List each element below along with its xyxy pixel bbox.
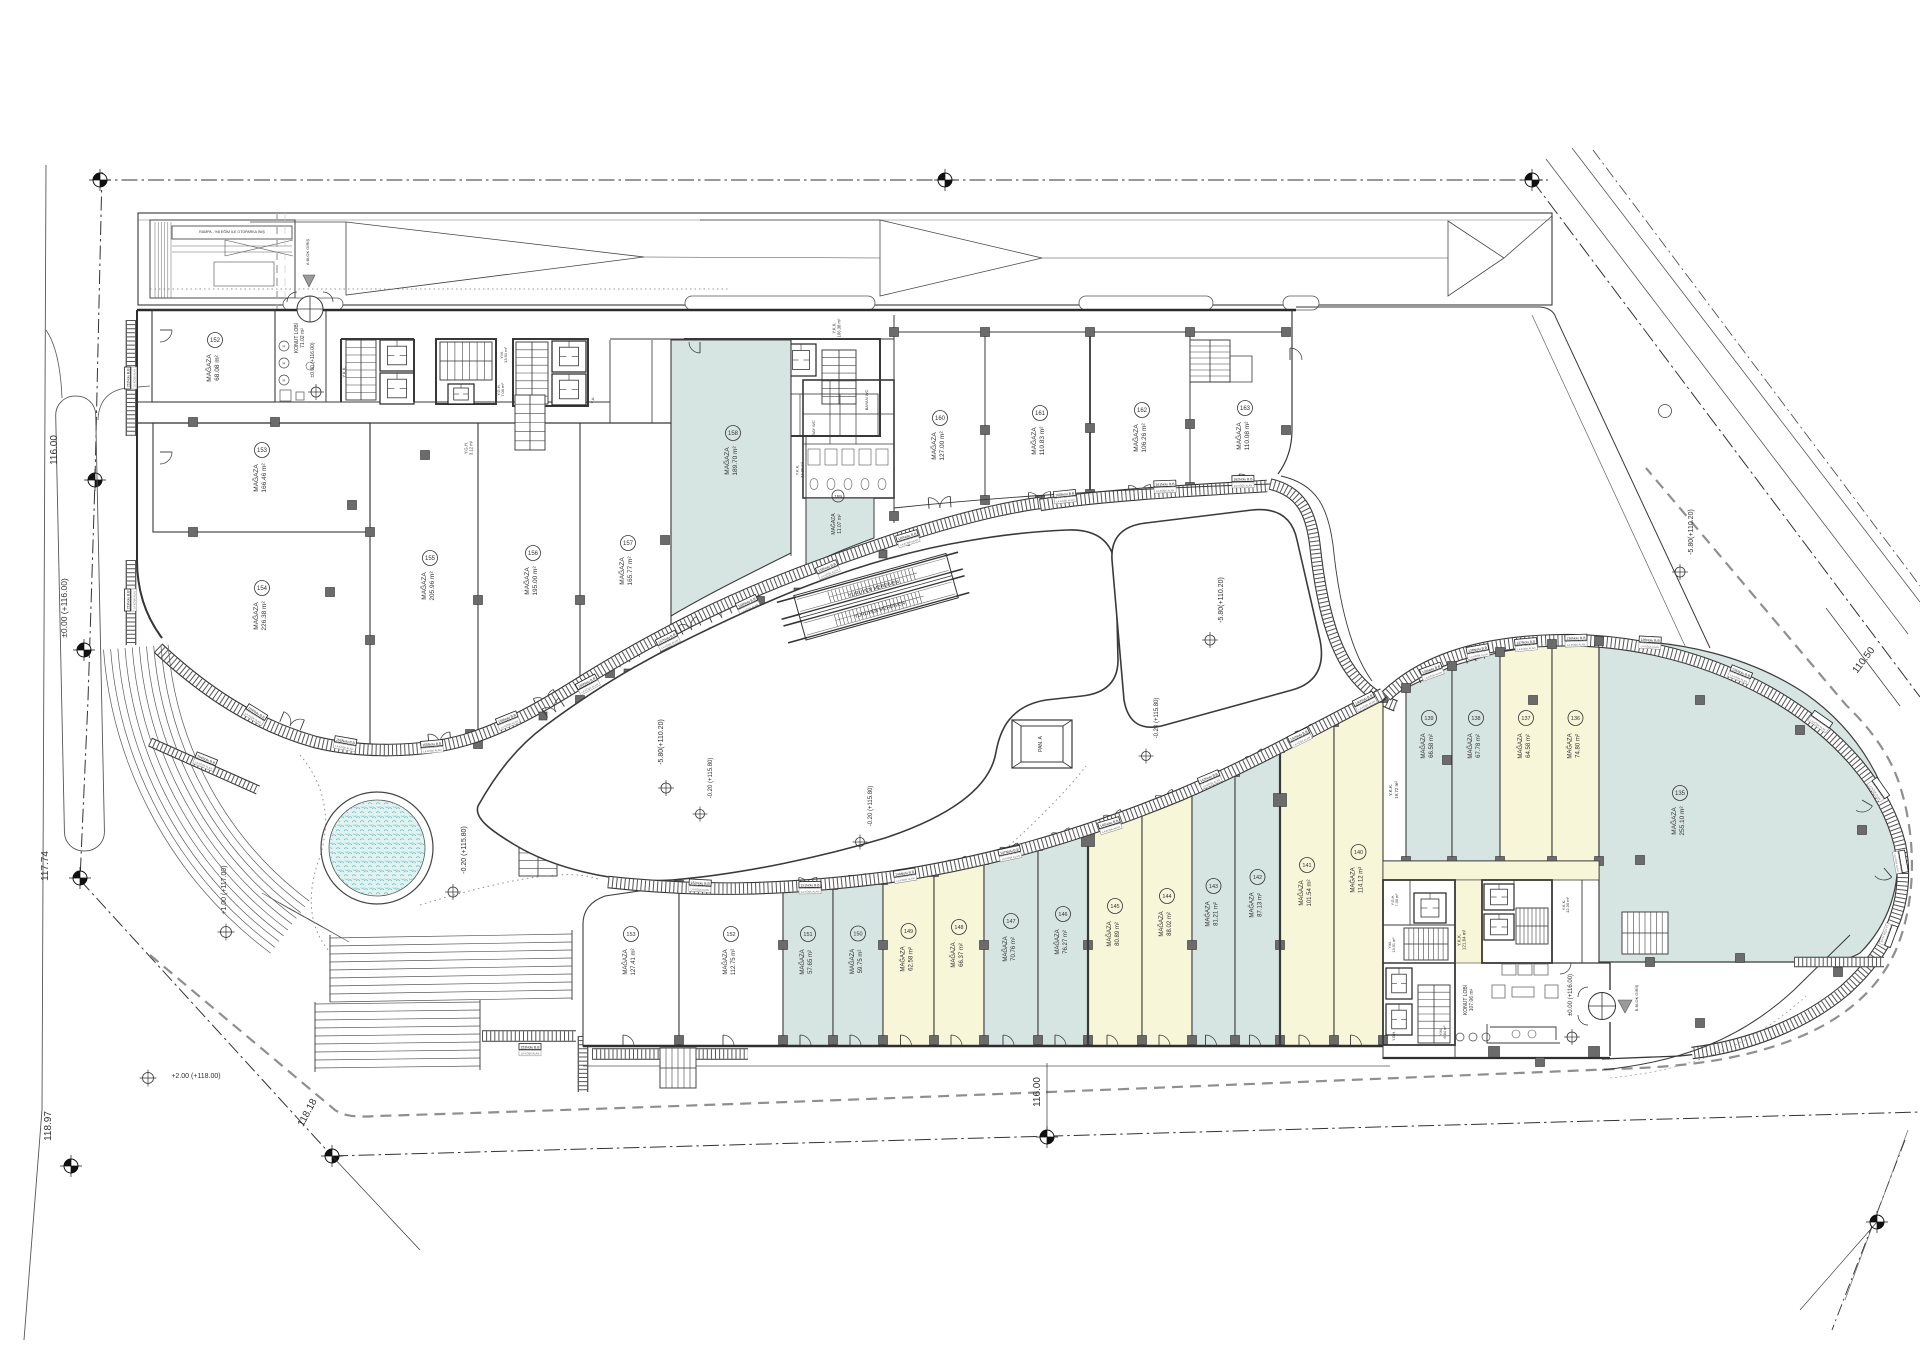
svg-text:140: 140 bbox=[1354, 850, 1363, 856]
svg-text:144: 144 bbox=[1162, 894, 1171, 900]
svg-text:MAĞAZA205.96 m²: MAĞAZA205.96 m² bbox=[419, 571, 436, 601]
svg-text:LA KÖŞK ALAN: LA KÖŞK ALAN bbox=[1567, 642, 1586, 647]
svg-text:LA KÖŞK ALAN: LA KÖŞK ALAN bbox=[521, 1052, 539, 1056]
svg-text:139: 139 bbox=[1424, 716, 1433, 722]
svg-text:PAN. A: PAN. A bbox=[1038, 735, 1044, 751]
svg-text:147: 147 bbox=[1006, 919, 1015, 925]
svg-text:161Nolu B.B: 161Nolu B.B bbox=[1155, 482, 1175, 487]
svg-text:MAĞAZA110.08 m²: MAĞAZA110.08 m² bbox=[1234, 421, 1251, 451]
svg-text:163: 163 bbox=[1240, 406, 1251, 412]
svg-text:153: 153 bbox=[626, 932, 635, 938]
svg-text:148: 148 bbox=[954, 925, 963, 931]
svg-text:±0.00 (+116.00): ±0.00 (+116.00) bbox=[310, 342, 316, 377]
svg-text:155: 155 bbox=[425, 556, 436, 562]
svg-text:A BLOK GİRİŞ: A BLOK GİRİŞ bbox=[305, 239, 310, 266]
svg-text:143: 143 bbox=[1209, 884, 1218, 890]
svg-text:162Nolu B.B: 162Nolu B.B bbox=[1233, 477, 1253, 481]
svg-text:-0.20 (+115.80): -0.20 (+115.80) bbox=[708, 758, 714, 799]
svg-text:-5.80(+110.20): -5.80(+110.20) bbox=[1688, 509, 1695, 555]
svg-text:153Nolu B.B: 153Nolu B.B bbox=[520, 1045, 540, 1049]
svg-text:135: 135 bbox=[1675, 791, 1686, 797]
svg-text:153: 153 bbox=[257, 448, 268, 454]
svg-text:MAĞAZA68.08 m²: MAĞAZA68.08 m² bbox=[204, 354, 221, 382]
svg-text:LA KÖŞK ALAN: LA KÖŞK ALAN bbox=[801, 889, 820, 893]
svg-text:138: 138 bbox=[1471, 716, 1480, 722]
svg-text:118.97: 118.97 bbox=[43, 1111, 54, 1141]
svg-text:LA KÖŞK ALAN: LA KÖŞK ALAN bbox=[1156, 488, 1175, 493]
svg-text:H: H bbox=[283, 344, 286, 349]
svg-text:LA KÖŞK ALAN: LA KÖŞK ALAN bbox=[133, 591, 137, 609]
svg-text:136Nolu B.B: 136Nolu B.B bbox=[1566, 636, 1586, 641]
svg-text:161: 161 bbox=[1035, 411, 1046, 417]
svg-text:141: 141 bbox=[1302, 863, 1311, 869]
svg-text:159: 159 bbox=[834, 494, 842, 499]
svg-text:-5.80(+110.20): -5.80(+110.20) bbox=[658, 719, 665, 765]
svg-text:151Nolu B.B: 151Nolu B.B bbox=[800, 883, 820, 887]
svg-text:162: 162 bbox=[1137, 408, 1148, 414]
svg-text:MAĞAZA226.38 m²: MAĞAZA226.38 m² bbox=[251, 601, 268, 631]
svg-text:H: H bbox=[283, 361, 286, 366]
svg-text:Y.G.H.3.12 m²: Y.G.H.3.12 m² bbox=[464, 440, 474, 455]
svg-text:116.00: 116.00 bbox=[49, 435, 60, 465]
svg-text:153Nolu B.B: 153Nolu B.B bbox=[126, 590, 130, 610]
svg-text:B BLOK GİRİŞ: B BLOK GİRİŞ bbox=[1634, 984, 1639, 1011]
svg-text:LA KÖŞK ALAN: LA KÖŞK ALAN bbox=[133, 369, 137, 387]
svg-text:-0.20 (+115.80): -0.20 (+115.80) bbox=[868, 786, 874, 827]
svg-text:MAĞAZA127.00 m²: MAĞAZA127.00 m² bbox=[929, 431, 946, 461]
svg-text:MAĞAZA110.83 m²: MAĞAZA110.83 m² bbox=[1029, 426, 1046, 456]
svg-text:MAĞAZA189.70 m²: MAĞAZA189.70 m² bbox=[722, 446, 739, 476]
svg-text:142: 142 bbox=[1253, 875, 1262, 881]
svg-text:Y.G.H.: Y.G.H. bbox=[1392, 1031, 1396, 1041]
svg-text:MAĞAZA166.46 m²: MAĞAZA166.46 m² bbox=[251, 463, 268, 493]
svg-text:157: 157 bbox=[623, 541, 634, 547]
svg-text:MAĞAZA11.07 m²: MAĞAZA11.07 m² bbox=[830, 513, 843, 535]
svg-text:RAMPA - %8 EĞİM İLE OTOPARKA İ: RAMPA - %8 EĞİM İLE OTOPARKA İNİŞ bbox=[199, 229, 265, 234]
svg-text:MAĞAZA165.77 m²: MAĞAZA165.77 m² bbox=[617, 556, 634, 586]
svg-text:158: 158 bbox=[728, 431, 739, 437]
svg-text:MAĞAZA195.00 m²: MAĞAZA195.00 m² bbox=[522, 566, 539, 596]
svg-text:±0.00 (+116.00): ±0.00 (+116.00) bbox=[59, 578, 69, 638]
svg-text:BAY WC: BAY WC bbox=[811, 420, 816, 436]
svg-text:152Nolu B.B: 152Nolu B.B bbox=[126, 368, 130, 388]
svg-text:Y.G.H.7.00 m²: Y.G.H.7.00 m² bbox=[496, 383, 505, 397]
svg-text:152: 152 bbox=[210, 338, 221, 344]
svg-text:117.74: 117.74 bbox=[40, 851, 51, 881]
svg-text:149: 149 bbox=[904, 929, 913, 935]
svg-text:±0.00 (+116.00): ±0.00 (+116.00) bbox=[1568, 974, 1574, 1016]
svg-text:156: 156 bbox=[528, 551, 539, 557]
svg-text:-5.80(+110.20): -5.80(+110.20) bbox=[1218, 577, 1225, 623]
svg-text:116.00: 116.00 bbox=[1032, 1077, 1043, 1107]
svg-text:+2.00 (+118.00): +2.00 (+118.00) bbox=[171, 1073, 220, 1080]
svg-text:146: 146 bbox=[1058, 912, 1067, 918]
svg-text:137: 137 bbox=[1521, 716, 1530, 722]
svg-text:-0.20 (+115.80): -0.20 (+115.80) bbox=[1154, 698, 1160, 739]
svg-text:151: 151 bbox=[803, 932, 812, 938]
svg-text:145: 145 bbox=[1110, 904, 1119, 910]
svg-text:MAĞAZA255.10 m²: MAĞAZA255.10 m² bbox=[1669, 806, 1686, 836]
svg-text:154: 154 bbox=[257, 586, 268, 592]
svg-text:Y.A.: Y.A. bbox=[590, 396, 595, 403]
svg-text:BAYAN WC: BAYAN WC bbox=[864, 390, 869, 411]
svg-text:136: 136 bbox=[1571, 716, 1580, 722]
svg-text:KONUT LOBİ107.06 m²: KONUT LOBİ107.06 m² bbox=[1462, 985, 1475, 1015]
svg-text:150: 150 bbox=[853, 932, 862, 938]
svg-text:MAĞAZA106.26 m²: MAĞAZA106.26 m² bbox=[1131, 423, 1148, 453]
svg-text:H: H bbox=[283, 378, 286, 383]
svg-text:152: 152 bbox=[726, 932, 735, 938]
svg-text:Y.G.H.7.00 m²: Y.G.H.7.00 m² bbox=[1391, 893, 1399, 907]
svg-text:160: 160 bbox=[935, 416, 946, 422]
svg-text:LA KÖŞK ALAN: LA KÖŞK ALAN bbox=[1234, 483, 1253, 487]
svg-text:-0.20 (+115.80): -0.20 (+115.80) bbox=[461, 826, 468, 874]
